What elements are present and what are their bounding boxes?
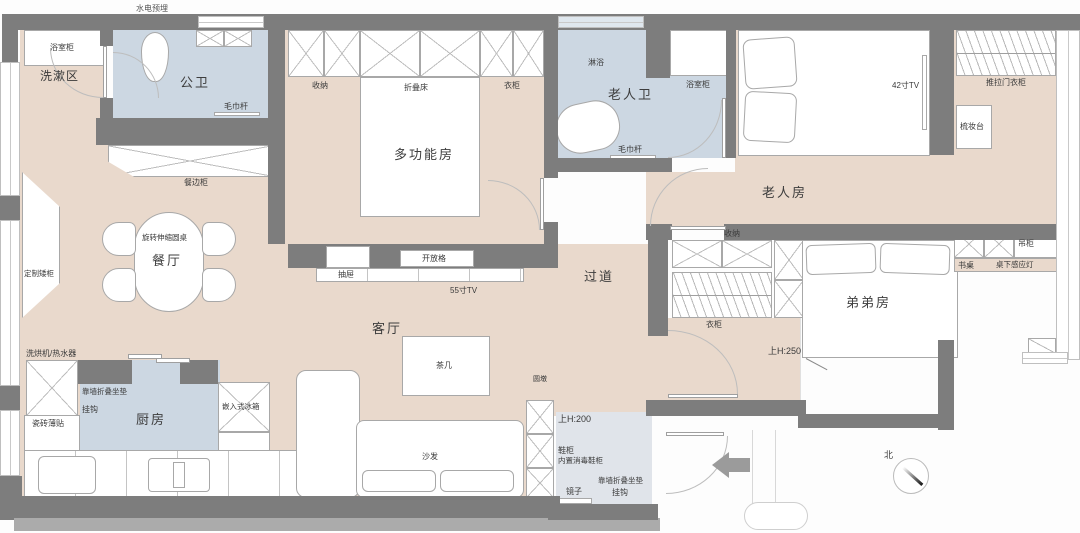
label-custom-low-cabinet: 定制矮柜 bbox=[24, 270, 54, 279]
elder-pillow-2 bbox=[743, 91, 798, 144]
wall-under-public-bath bbox=[96, 118, 272, 145]
label-thin-tile: 瓷砖薄贴 bbox=[32, 419, 64, 428]
compass-north-label: 北 bbox=[884, 450, 893, 460]
window-right bbox=[1056, 30, 1080, 360]
sofa-chaise bbox=[296, 370, 360, 498]
wall-bed-east bbox=[930, 14, 954, 155]
multi-cabinet-cell bbox=[324, 30, 360, 77]
label-public-bath: 公卫 bbox=[180, 76, 210, 91]
wall-elder-south-b bbox=[724, 224, 1068, 240]
wall-elder-bath-east bbox=[726, 28, 736, 158]
door-leaf-brother bbox=[668, 394, 738, 398]
wall-wash-divider-top bbox=[100, 30, 113, 46]
kitchen-sink bbox=[38, 456, 96, 494]
label-sideboard: 餐边柜 bbox=[184, 178, 208, 187]
elder-bath-vanity bbox=[670, 30, 728, 76]
window-left-mid bbox=[0, 220, 20, 386]
label-drawer: 抽屉 bbox=[338, 270, 354, 279]
floor-plan: 北 水电预埋 洗漱区 浴室柜 公卫 毛巾杆 收纳 折叠床 衣柜 多功能房 淋浴 … bbox=[0, 0, 1080, 533]
wall-left-mid bbox=[0, 196, 20, 220]
wall-multi-east bbox=[544, 30, 558, 178]
outside-corridor-line bbox=[752, 430, 776, 504]
label-fridge: 嵌入式冰箱 bbox=[222, 403, 260, 412]
label-tea-table: 茶几 bbox=[436, 361, 452, 370]
label-multi-room: 多功能房 bbox=[394, 148, 454, 163]
sliding-wardrobe-box bbox=[956, 30, 1056, 76]
label-elder-bath: 老人卫 bbox=[608, 88, 653, 103]
door-leaf-wash bbox=[103, 46, 107, 98]
sideboard-box bbox=[108, 145, 272, 177]
kitchen-sliding-door-b bbox=[156, 358, 190, 363]
wall-hall-east bbox=[648, 232, 668, 336]
label-wardrobe-2: 衣柜 bbox=[706, 320, 722, 329]
entry-arrow bbox=[712, 452, 729, 478]
hall-closet-cell bbox=[672, 240, 722, 268]
label-elder-room: 老人房 bbox=[762, 186, 807, 201]
label-towel-bar-1: 毛巾杆 bbox=[224, 102, 248, 111]
label-shower: 淋浴 bbox=[588, 58, 604, 67]
label-towel-bar-2: 毛巾杆 bbox=[618, 145, 642, 154]
brother-pillow-2 bbox=[879, 243, 950, 275]
window-public-bath bbox=[198, 16, 264, 28]
label-sofa: 沙发 bbox=[422, 452, 438, 461]
wall-kitchen-stub-a bbox=[78, 360, 132, 384]
wall-left-low bbox=[0, 386, 20, 410]
shoe-cabinet-cell bbox=[526, 468, 554, 498]
outside-planter bbox=[744, 502, 808, 530]
wall-bottom bbox=[14, 496, 560, 518]
drawer-opening bbox=[326, 246, 370, 268]
label-desk-lamp: 桌下感应灯 bbox=[996, 261, 1034, 270]
door-leaf-elder-bath bbox=[722, 98, 726, 158]
label-bath-cabinet-1: 浴室柜 bbox=[50, 43, 74, 52]
tv42-panel bbox=[922, 55, 927, 130]
label-folding-bed: 折叠床 bbox=[404, 83, 428, 92]
wall-left-corner bbox=[2, 14, 18, 62]
hall-closet-cell bbox=[722, 240, 772, 268]
label-wash-area: 洗漱区 bbox=[40, 70, 79, 84]
public-bath-cabinet2 bbox=[224, 30, 252, 47]
label-sliding-wardrobe: 推拉门衣柜 bbox=[956, 78, 1056, 87]
label-mirror: 镜子 bbox=[566, 487, 582, 496]
stove-center bbox=[173, 462, 185, 488]
hall-wardrobe bbox=[672, 272, 772, 318]
label-shoe-cabinet: 鞋柜 bbox=[558, 446, 574, 455]
shoe-cabinet-cell bbox=[526, 400, 554, 434]
label-hook-1: 挂钩 bbox=[82, 405, 98, 414]
multi-cabinet-cell bbox=[480, 30, 513, 77]
label-bath-cabinet-2: 浴室柜 bbox=[686, 80, 710, 89]
towel-bar-1 bbox=[214, 112, 260, 116]
door-leaf-elder-room bbox=[670, 226, 726, 230]
brother-pillow-1 bbox=[805, 243, 876, 275]
wall-hallext-south bbox=[646, 400, 806, 416]
sofa-cushion bbox=[440, 470, 514, 492]
wall-kitchen-stub-b bbox=[180, 360, 218, 384]
door-leaf-multi bbox=[540, 178, 544, 230]
sofa-cushion bbox=[362, 470, 436, 492]
wall-brother-east-stub bbox=[938, 340, 954, 430]
label-wall-cushion-2: 靠墙折叠坐垫 bbox=[598, 477, 643, 486]
window-left-bottom bbox=[0, 410, 20, 476]
dining-chair bbox=[102, 222, 136, 256]
window-left-top bbox=[0, 62, 20, 196]
label-hook-2: 挂钩 bbox=[612, 488, 628, 497]
wall-elder-bath-inner bbox=[646, 28, 670, 78]
hall-closet-side bbox=[774, 280, 804, 318]
public-bath-cabinet bbox=[196, 30, 224, 47]
window-elder-bath bbox=[558, 16, 644, 28]
label-open-shelf: 开放格 bbox=[422, 254, 446, 263]
label-hallway: 过道 bbox=[584, 270, 614, 285]
label-dresser: 梳妆台 bbox=[960, 122, 984, 131]
label-kitchen: 厨房 bbox=[136, 413, 166, 428]
multi-cabinet-cell bbox=[360, 30, 420, 77]
label-round-stool: 圆墩 bbox=[533, 376, 547, 384]
label-round-table: 旋转伸缩圆桌 bbox=[142, 234, 187, 243]
wall-multi-east-stub bbox=[544, 222, 558, 246]
entry-arrow-tail bbox=[728, 458, 750, 472]
label-hang-cabinet: 吊柜 bbox=[1018, 239, 1034, 248]
hall-closet-side bbox=[774, 240, 804, 280]
wall-multi-west bbox=[268, 30, 285, 244]
washer-dryer-stack bbox=[26, 360, 78, 416]
multi-cabinet-cell bbox=[513, 30, 544, 77]
wall-entry-south bbox=[548, 504, 658, 520]
label-washer-heater: 洗烘机/热水器 bbox=[26, 349, 76, 358]
label-storage-2: 收纳 bbox=[724, 229, 740, 238]
label-up200: 上H:200 bbox=[558, 414, 591, 424]
multi-cabinet-cell bbox=[420, 30, 480, 77]
wall-top bbox=[18, 14, 1068, 30]
wall-elder-bath-south bbox=[558, 158, 672, 172]
dining-chair bbox=[102, 268, 136, 302]
dining-chair bbox=[202, 222, 236, 256]
label-tv55: 55寸TV bbox=[450, 286, 477, 295]
label-wardrobe-1: 衣柜 bbox=[504, 81, 520, 90]
label-storage-1: 收纳 bbox=[312, 81, 328, 90]
wall-brother-south bbox=[798, 414, 946, 428]
multi-cabinet-cell bbox=[288, 30, 324, 77]
shoe-cabinet-cell bbox=[526, 434, 554, 468]
label-tv42: 42寸TV bbox=[892, 81, 919, 90]
label-living: 客厅 bbox=[372, 322, 402, 337]
dining-chair bbox=[202, 268, 236, 302]
window-brother-bay bbox=[1022, 352, 1068, 364]
label-brother-room: 弟弟房 bbox=[846, 296, 891, 311]
label-top-note: 水电预埋 bbox=[136, 4, 168, 13]
elder-pillow-1 bbox=[742, 36, 797, 90]
label-up250: 上H:250 bbox=[768, 346, 801, 356]
label-wall-cushion-1: 靠墙折叠坐垫 bbox=[82, 388, 127, 397]
label-desk: 书桌 bbox=[958, 261, 974, 270]
label-dining: 餐厅 bbox=[152, 254, 182, 269]
label-shoe-sanitizer: 内置消毒鞋柜 bbox=[558, 457, 603, 466]
